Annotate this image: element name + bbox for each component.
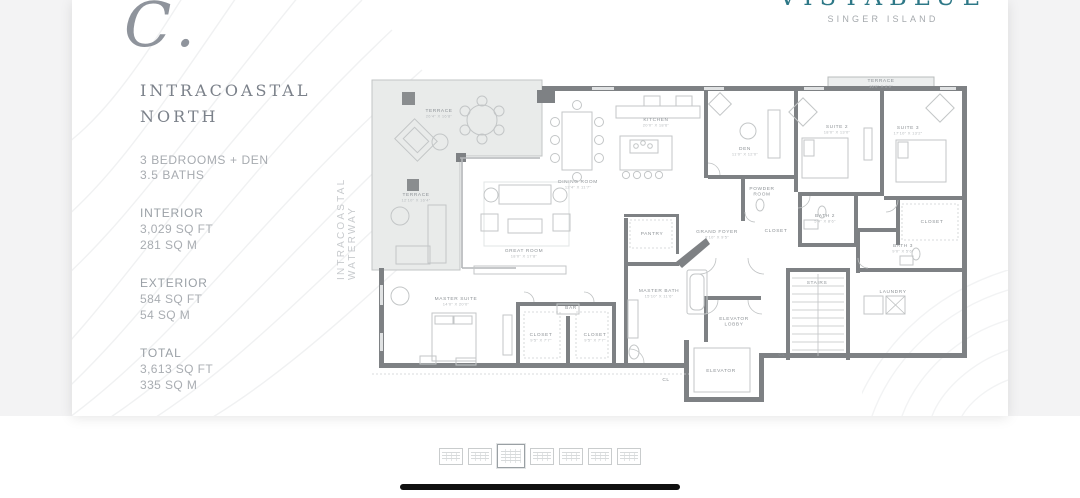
spec-value: 584 SQ FT: [140, 291, 352, 307]
floorplan-thumbnail[interactable]: [530, 448, 554, 465]
bedrooms-text: 3 BEDROOMS + DEN: [140, 153, 352, 168]
plan-letter: C.: [124, 0, 352, 56]
thumbnail-strip: [439, 444, 641, 468]
spec-total: TOTAL 3,613 SQ FT 335 SQ M: [140, 345, 352, 393]
room-dims: 18'0" X 13'0": [824, 130, 851, 135]
room-dims: 20'0" X 18'6": [643, 123, 670, 128]
thumbnail-sketch: [442, 452, 460, 461]
room-dims: 17'10" X 13'2": [893, 131, 922, 136]
waterway-label: INTRACOASTAL WATERWAY: [336, 140, 358, 280]
room-label: CL: [778, 352, 785, 358]
room-dims: 26'4" X 16'8": [426, 114, 453, 119]
room-dims: 9'0" X 5'6": [892, 249, 914, 254]
room-dims: 12'10" X 16'4": [401, 198, 430, 203]
spec-label: TOTAL: [140, 345, 352, 361]
baths-text: 3.5 BATHS: [140, 168, 352, 183]
thumbnail-sketch: [501, 449, 522, 462]
spec-value: 281 SQ M: [140, 237, 352, 253]
room-dims: 16'0" X 2'0": [869, 84, 893, 89]
room-label: POWDERROOM: [749, 186, 774, 198]
spec-value: 3,613 SQ FT: [140, 361, 352, 377]
floorplan-thumbnail[interactable]: [439, 448, 463, 465]
spec-value: 335 SQ M: [140, 377, 352, 393]
floorplan-thumbnail[interactable]: [468, 448, 492, 465]
thumbnail-sketch: [591, 452, 609, 461]
room-label: PANTRY: [641, 231, 664, 237]
plan-info-sidebar: C. INTRACOASTAL NORTH 3 BEDROOMS + DEN 3…: [122, 0, 352, 415]
floorplan-thumbnail[interactable]: [588, 448, 612, 465]
room-label: STAIRS: [807, 280, 828, 286]
spec-exterior: EXTERIOR 584 SQ FT 54 SQ M: [140, 275, 352, 323]
room-dims: 9'10" X 9'5": [705, 235, 729, 240]
floorplan-thumbnail[interactable]: [617, 448, 641, 465]
room-label: ELEVATOR: [706, 368, 736, 374]
area-specs: INTERIOR 3,029 SQ FT 281 SQ M EXTERIOR 5…: [140, 205, 352, 393]
plan-name-line1: INTRACOASTAL: [140, 78, 352, 104]
room-dims: 9'5" X 7'7": [584, 338, 606, 343]
room-dims: 11'0" X 12'0": [732, 152, 758, 157]
room-dims: 9'5" X 7'7": [530, 338, 552, 343]
room-dims: 18'0" X 17'8": [511, 254, 538, 259]
room-dims: 14'0" X 20'0": [443, 302, 470, 307]
spec-interior: INTERIOR 3,029 SQ FT 281 SQ M: [140, 205, 352, 253]
brand-name: VISTABLUE: [773, 0, 993, 11]
room-label: CLOSET: [921, 219, 944, 225]
spec-value: 54 SQ M: [140, 307, 352, 323]
plan-name: INTRACOASTAL NORTH: [140, 78, 352, 129]
brand-logo: VISTABLUE SINGER ISLAND: [773, 0, 993, 38]
floorplan-drawing: TERRACE26'4" X 16'8"TERRACE12'10" X 16'4…: [365, 64, 981, 408]
spec-label: EXTERIOR: [140, 275, 352, 291]
spec-value: 3,029 SQ FT: [140, 221, 352, 237]
thumbnail-sketch: [620, 452, 638, 461]
room-label: CL: [662, 377, 669, 383]
floorplan-thumbnail[interactable]: [497, 444, 525, 468]
room-dims: 15'10" X 11'6": [645, 294, 674, 299]
room-label: LAUNDRY: [879, 289, 906, 295]
room-label: BAR: [565, 305, 577, 311]
room-label: CLOSET: [765, 228, 788, 234]
thumbnail-sketch: [471, 452, 489, 461]
spec-label: INTERIOR: [140, 205, 352, 221]
floorplan-card: VISTABLUE SINGER ISLAND C. INTRACOASTAL …: [72, 0, 1008, 416]
thumbnail-sketch: [562, 452, 580, 461]
floorplan-thumbnail[interactable]: [559, 448, 583, 465]
hero-section: VISTABLUE SINGER ISLAND C. INTRACOASTAL …: [0, 0, 1080, 416]
room-dims: 5'4" X 8'6": [814, 219, 836, 224]
room-label: ELEVATORLOBBY: [719, 316, 749, 328]
scroll-indicator-bar[interactable]: [400, 484, 680, 490]
bed-bath-summary: 3 BEDROOMS + DEN 3.5 BATHS: [140, 153, 352, 183]
room-dims: 12'4" X 11'7": [565, 185, 591, 190]
stairs-treads: [792, 274, 844, 356]
brand-tagline: SINGER ISLAND: [773, 14, 993, 24]
thumbnail-sketch: [533, 452, 551, 461]
plan-name-line2: NORTH: [140, 104, 352, 130]
